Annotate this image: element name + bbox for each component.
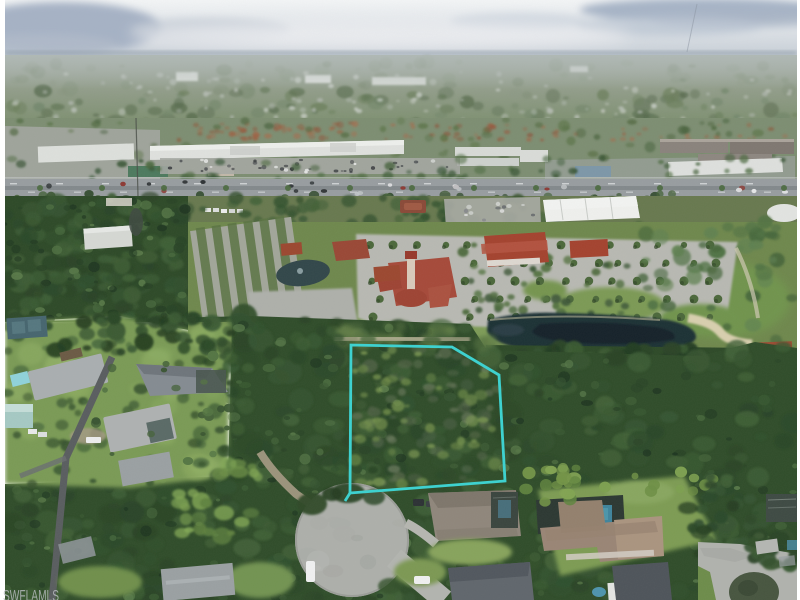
- svg-text:SWFLAMLS: SWFLAMLS: [3, 588, 59, 600]
